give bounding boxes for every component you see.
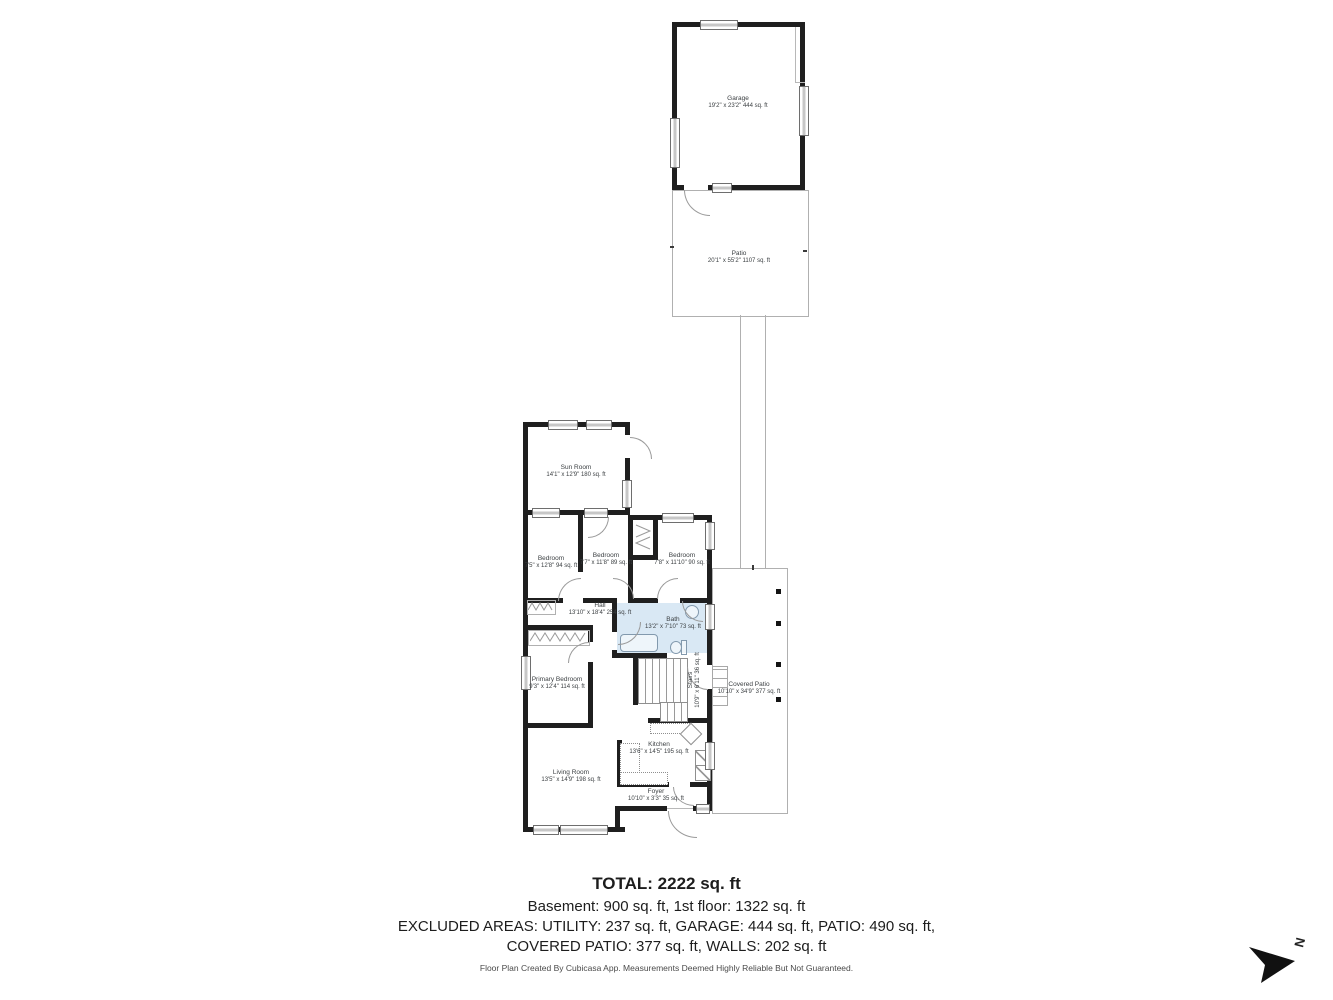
bedroom-middle-label: Bedroom 7'7" x 11'8" 89 sq. ft xyxy=(580,552,632,568)
room-dims: 10'9" x 6'11" 36 sq. ft xyxy=(695,652,703,707)
room-dims: 13'6" x 14'5" 195 sq. ft xyxy=(629,749,688,757)
disclaimer-text: Floor Plan Created By Cubicasa App. Meas… xyxy=(0,963,1333,973)
room-name: Covered Patio xyxy=(718,681,781,689)
room-dims: 14'1" x 12'9" 180 sq. ft xyxy=(546,472,605,480)
door-arc xyxy=(588,517,609,538)
window xyxy=(622,480,632,508)
bedroom-left-label: Bedroom 7'5" x 12'8" 94 sq. ft xyxy=(525,555,578,571)
excluded-areas-text-2: COVERED PATIO: 377 sq. ft, WALLS: 202 sq… xyxy=(0,938,1333,955)
area-summary: TOTAL: 2222 sq. ft Basement: 900 sq. ft,… xyxy=(0,874,1333,958)
sun-room-label: Sun Room 14'1" x 12'9" 180 sq. ft xyxy=(546,464,605,480)
patio-post xyxy=(776,662,781,667)
covered-patio-label: Covered Patio 10'10" x 34'9" 377 sq. ft xyxy=(718,681,781,697)
window xyxy=(548,420,578,430)
window xyxy=(560,825,608,835)
wall xyxy=(672,22,805,27)
room-name: Garage xyxy=(708,95,767,103)
room-dims: 20'1" x 55'2" 1107 sq. ft xyxy=(708,258,770,266)
patio-label: Patio 20'1" x 55'2" 1107 sq. ft xyxy=(708,250,770,266)
door-arc xyxy=(668,811,697,838)
kitchen-counter xyxy=(620,772,668,785)
room-dims: 13'5" x 14'9" 198 sq. ft xyxy=(541,777,600,785)
window xyxy=(799,86,809,136)
window xyxy=(705,522,715,550)
window xyxy=(700,20,738,30)
room-dims: 9'3" x 12'4" 114 sq. ft xyxy=(529,684,584,692)
patio-post xyxy=(776,697,781,702)
kitchen-label: Kitchen 13'6" x 14'5" 195 sq. ft xyxy=(629,741,688,757)
window xyxy=(584,508,608,518)
room-name: Sun Room xyxy=(546,464,605,472)
total-area-text: TOTAL: 2222 sq. ft xyxy=(0,874,1333,894)
window xyxy=(533,825,559,835)
window xyxy=(696,804,710,814)
window xyxy=(670,118,680,168)
walkway xyxy=(740,315,766,568)
room-dims: 10'10" x 3'3" 35 sq. ft xyxy=(628,796,684,804)
room-name: Bath xyxy=(645,616,701,624)
wall xyxy=(523,723,593,728)
toilet-tank xyxy=(681,640,687,655)
room-dims: 19'2" x 23'2" 444 sq. ft xyxy=(708,103,767,111)
compass: N xyxy=(1243,933,1315,991)
excluded-areas-text: EXCLUDED AREAS: UTILITY: 237 sq. ft, GAR… xyxy=(0,918,1333,935)
window xyxy=(586,420,612,430)
tick-mark xyxy=(803,250,807,252)
closet-rod-icon xyxy=(530,632,586,642)
window xyxy=(712,183,732,193)
bifold-door-icon xyxy=(635,524,652,550)
closet-rod-icon xyxy=(528,602,553,611)
garage-label: Garage 19'2" x 23'2" 444 sq. ft xyxy=(708,95,767,111)
bedroom-right-label: Bedroom 7'8" x 11'10" 90 sq. ft xyxy=(654,552,709,568)
stairs-label: Stairs 10'9" x 6'11" 36 sq. ft xyxy=(687,652,703,707)
room-name: Foyer xyxy=(628,788,684,796)
utility-partition-line xyxy=(795,27,796,83)
room-name: Bedroom xyxy=(654,552,709,560)
bath-label: Bath 13'2" x 7'10" 73 sq. ft xyxy=(645,616,701,632)
window xyxy=(662,513,694,523)
door-arc xyxy=(657,578,678,599)
room-name: Primary Bedroom xyxy=(529,676,584,684)
window xyxy=(705,742,715,770)
staircase xyxy=(638,658,688,704)
window xyxy=(532,508,560,518)
floor-areas-text: Basement: 900 sq. ft, 1st floor: 1322 sq… xyxy=(0,898,1333,915)
door-arc xyxy=(558,578,581,601)
tick-mark xyxy=(670,246,674,248)
utility-partition-line xyxy=(795,82,805,83)
patio-post xyxy=(776,589,781,594)
room-dims: 10'10" x 34'9" 377 sq. ft xyxy=(718,689,781,697)
room-dims: 7'8" x 11'10" 90 sq. ft xyxy=(654,560,709,568)
tick-mark xyxy=(752,565,754,570)
window xyxy=(705,604,715,630)
patio-post xyxy=(776,621,781,626)
room-dims: 7'5" x 12'8" 94 sq. ft xyxy=(525,563,578,571)
room-dims: 13'10" x 18'4" 254 sq. ft xyxy=(569,610,632,618)
hall-label: Hall 13'10" x 18'4" 254 sq. ft xyxy=(569,602,632,618)
door-threshold xyxy=(667,808,693,809)
room-name: Kitchen xyxy=(629,741,688,749)
room-dims: 7'7" x 11'8" 89 sq. ft xyxy=(580,560,632,568)
room-name: Hall xyxy=(569,602,632,610)
staircase xyxy=(660,702,688,722)
room-name: Stairs xyxy=(687,652,695,707)
primary-bedroom-label: Primary Bedroom 9'3" x 12'4" 114 sq. ft xyxy=(529,676,584,692)
room-name: Bedroom xyxy=(580,552,632,560)
room-name: Patio xyxy=(708,250,770,258)
floor-plan-page: Garage 19'2" x 23'2" 444 sq. ft Patio 20… xyxy=(0,0,1333,1000)
living-room-label: Living Room 13'5" x 14'9" 198 sq. ft xyxy=(541,769,600,785)
door-arc xyxy=(630,437,652,459)
room-dims: 13'2" x 7'10" 73 sq. ft xyxy=(645,624,701,632)
room-name: Living Room xyxy=(541,769,600,777)
foyer-label: Foyer 10'10" x 3'3" 35 sq. ft xyxy=(628,788,684,804)
room-name: Bedroom xyxy=(525,555,578,563)
